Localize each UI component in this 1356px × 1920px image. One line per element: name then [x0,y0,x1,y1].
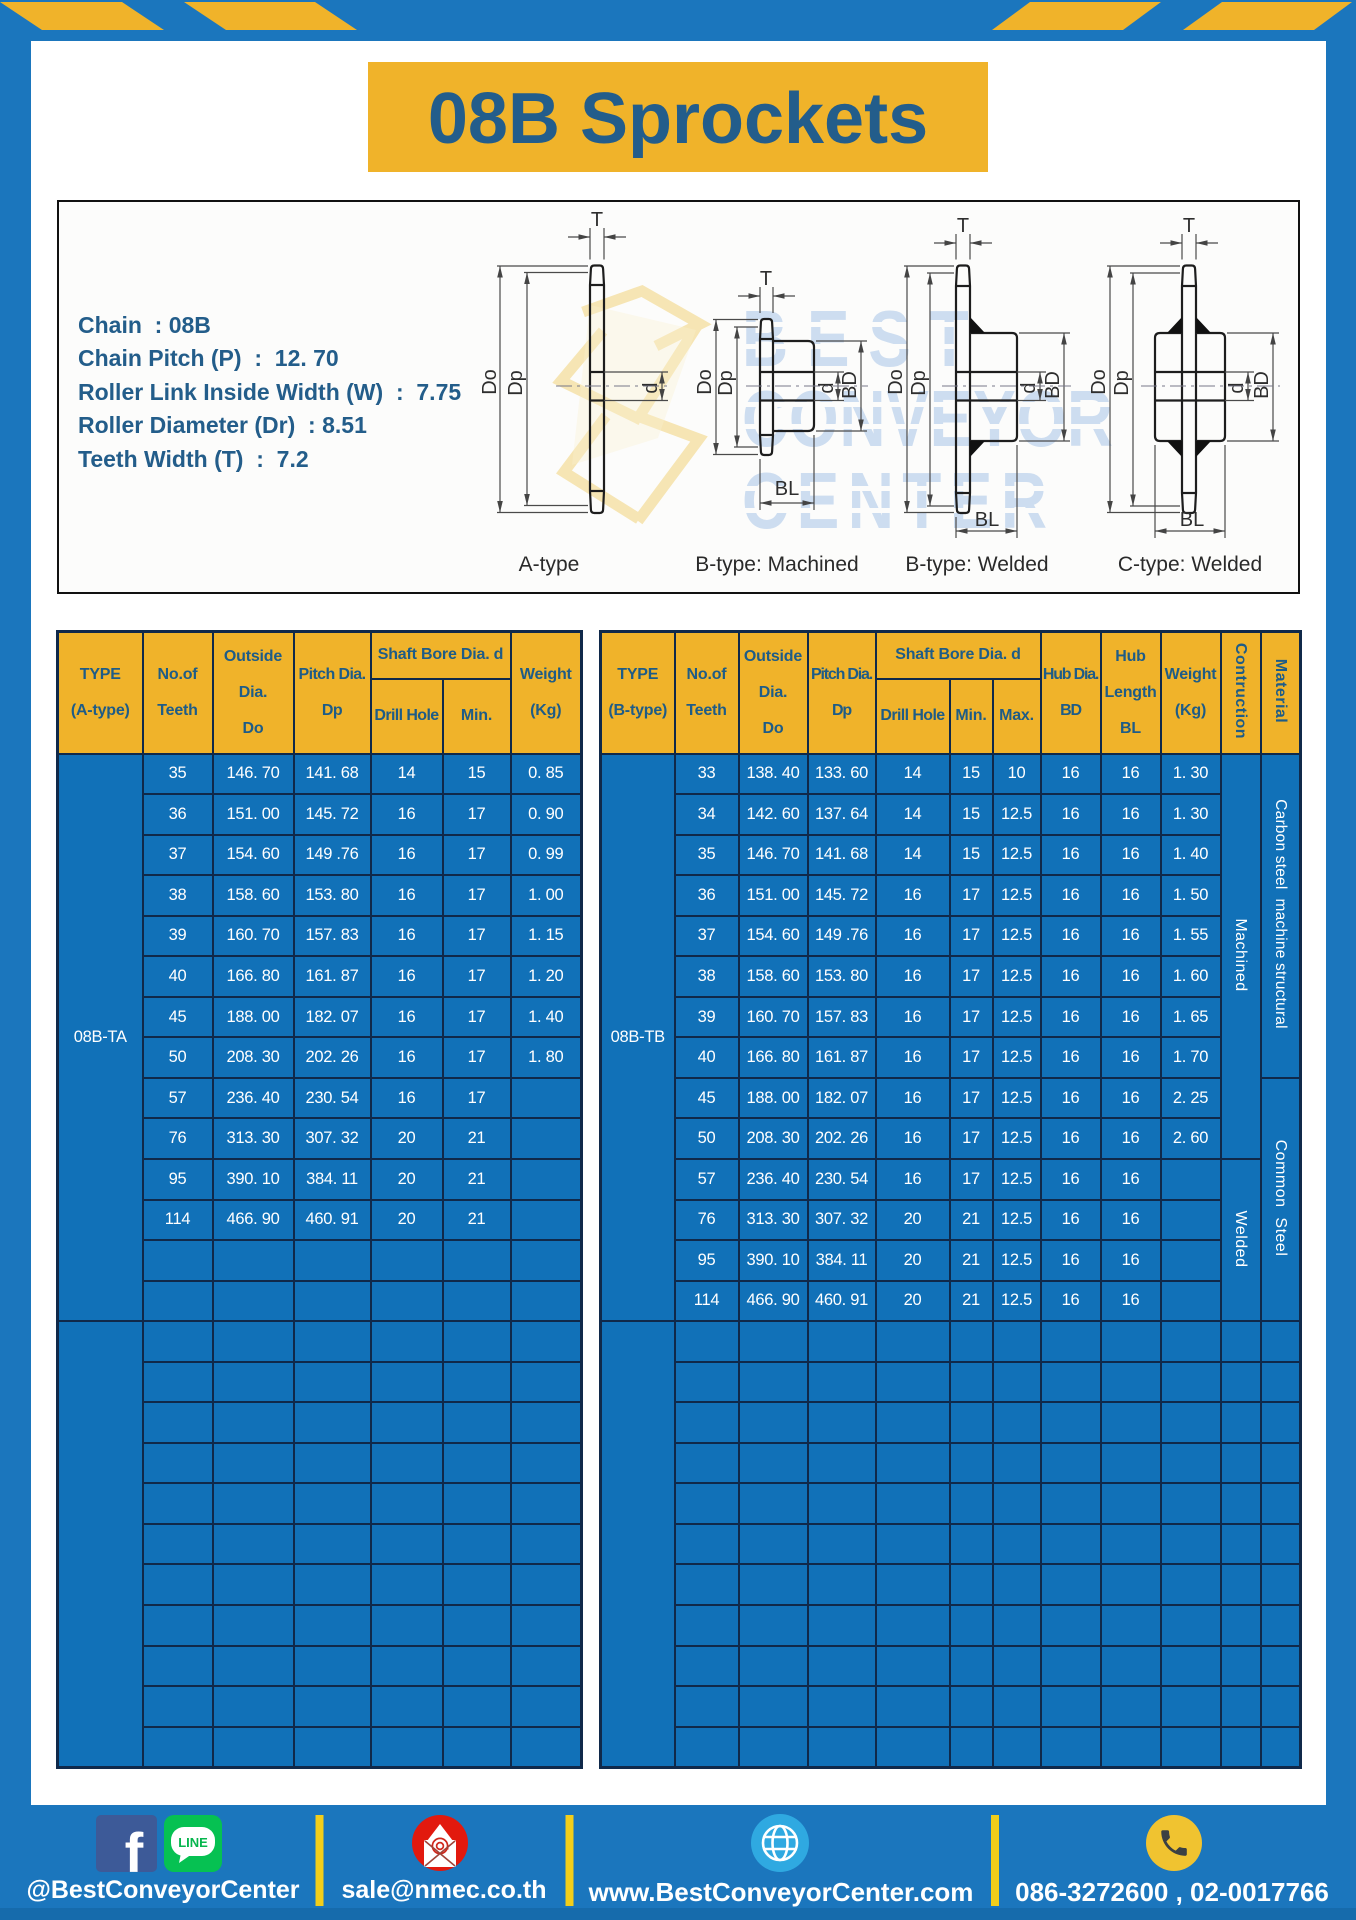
svg-text:Dp: Dp [505,370,527,396]
svg-text:d: d [1226,382,1248,393]
svg-text:BL: BL [975,509,999,531]
svg-text:BEST: BEST [742,294,987,383]
svg-text:BD: BD [1251,371,1273,399]
svg-text:Dp: Dp [1111,370,1133,396]
svg-text:Do: Do [694,369,716,395]
svg-text:d: d [640,382,662,393]
svg-text:d: d [1018,382,1040,393]
svg-text:B-type: Welded: B-type: Welded [905,553,1048,576]
svg-text:f: f [125,1821,144,1884]
svg-text:B-type: Machined: B-type: Machined [695,553,858,576]
svg-text:d: d [816,382,838,393]
svg-text:Dp: Dp [715,370,737,396]
svg-text:C-type: Welded: C-type: Welded [1118,553,1262,576]
svg-text:BL: BL [1180,509,1204,531]
svg-text:LINE: LINE [178,1835,208,1850]
svg-text:BD: BD [839,371,861,399]
svg-text:Do: Do [1088,369,1110,395]
svg-text:BL: BL [775,478,799,500]
svg-text:T: T [591,209,603,231]
svg-text:Dp: Dp [908,370,930,396]
svg-text:T: T [1183,215,1195,237]
svg-text:T: T [760,268,772,290]
svg-text:T: T [957,215,969,237]
svg-text:Do: Do [885,369,907,395]
svg-text:BD: BD [1042,371,1064,399]
svg-text:A-type: A-type [519,553,580,576]
svg-text:Do: Do [479,369,501,395]
